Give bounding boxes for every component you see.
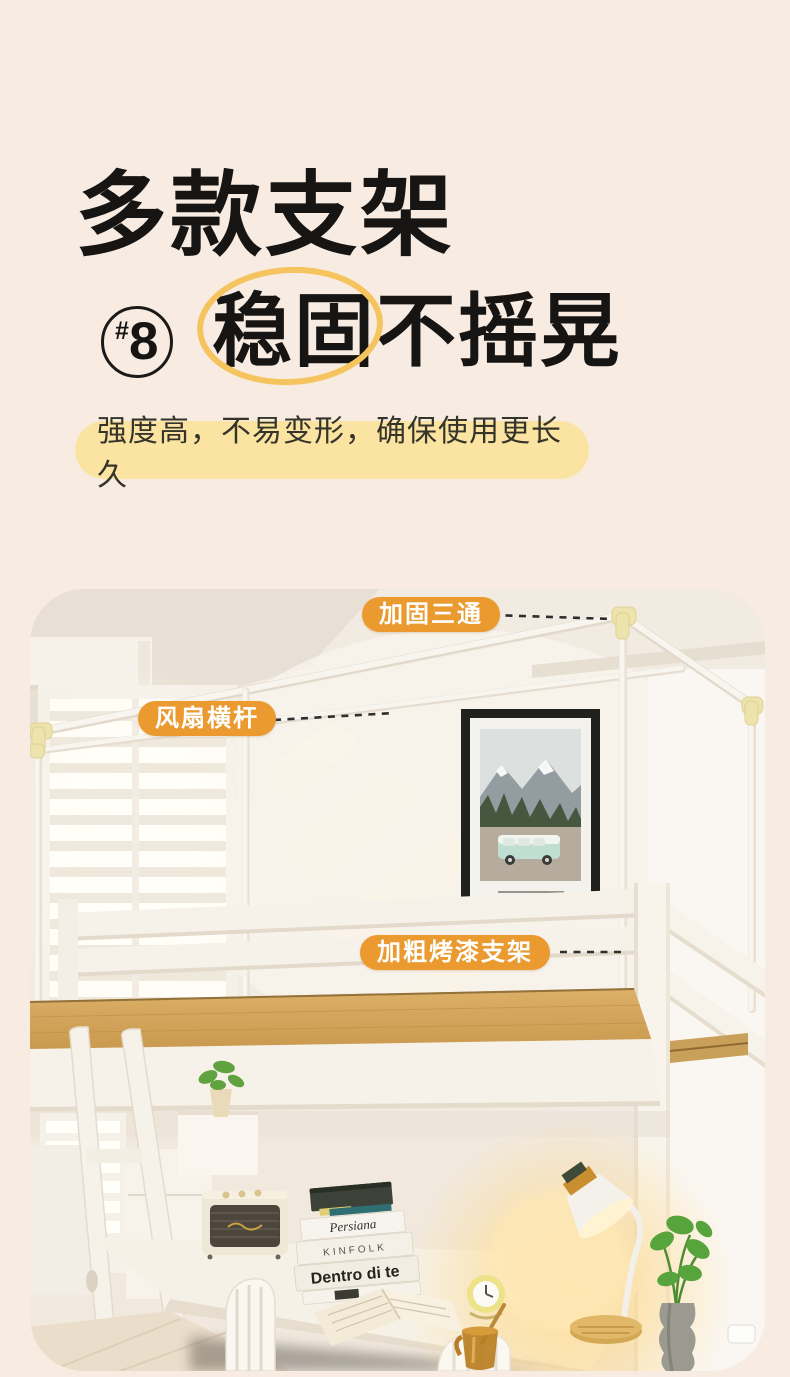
chair	[226, 1279, 275, 1371]
badge-hash: #	[115, 317, 129, 346]
headline-row: # 8 稳固不摇晃	[0, 288, 790, 398]
product-photo: Persiana KINFOLK Dentro di te	[30, 589, 765, 1371]
callout-fan-crossbar: 风扇横杆	[138, 701, 276, 736]
wall-art	[461, 709, 600, 913]
page-title: 多款支架	[75, 168, 455, 265]
callout-reinforced-tee: 加固三通	[362, 597, 500, 632]
callout-thick-painted-bracket: 加粗烤漆支架	[360, 935, 550, 970]
benefit-banner: 强度高，不易变形，确保使用更长久	[75, 421, 589, 479]
product-detail-section: 多款支架 # 8 稳固不摇晃 强度高，不易变形，确保使用更长久	[0, 0, 790, 1377]
page-subtitle-headline: 稳固不摇晃	[212, 288, 622, 376]
wall-outlet	[728, 1325, 755, 1343]
badge-number: 8	[129, 311, 158, 372]
benefit-text: 强度高，不易变形，确保使用更长久	[75, 406, 589, 494]
number-badge: # 8	[101, 306, 173, 378]
speaker	[202, 1190, 288, 1260]
room-photo-illustration: Persiana KINFOLK Dentro di te	[30, 589, 765, 1371]
